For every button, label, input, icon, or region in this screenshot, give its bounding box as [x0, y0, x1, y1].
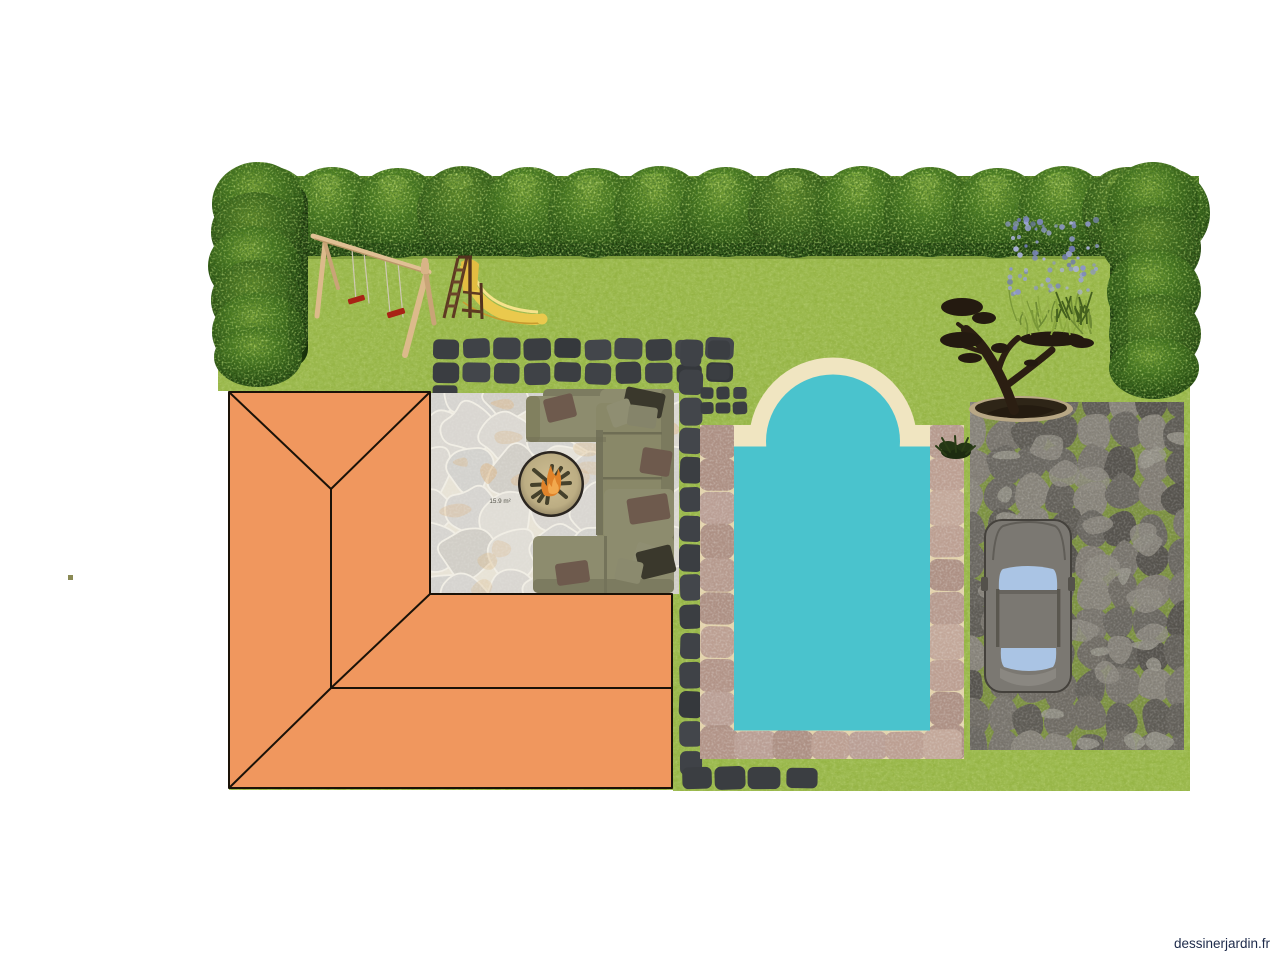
svg-text:15.9 m²: 15.9 m² [489, 498, 510, 505]
svg-text:dessinerjardin.fr: dessinerjardin.fr [1174, 936, 1271, 951]
